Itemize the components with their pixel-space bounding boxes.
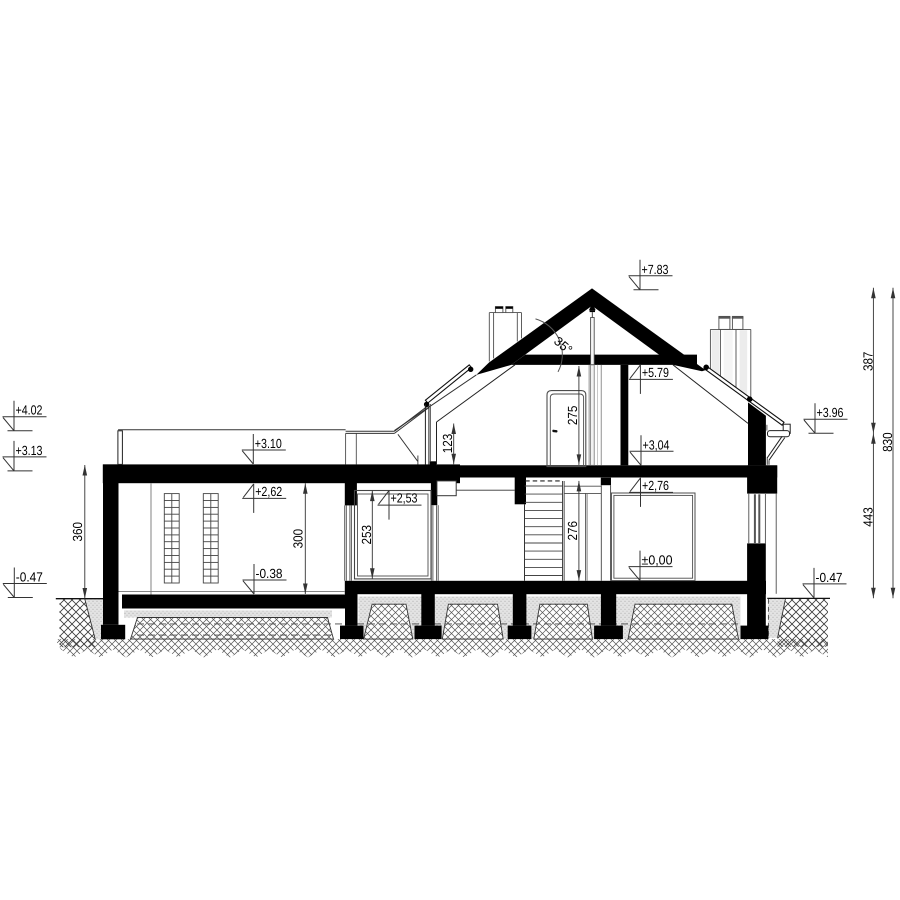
svg-text:300: 300 — [290, 529, 305, 549]
svg-text:360: 360 — [70, 522, 85, 542]
svg-text:+5.79: +5.79 — [642, 365, 669, 380]
svg-text:+7.83: +7.83 — [642, 262, 669, 277]
svg-text:-0.47: -0.47 — [16, 570, 43, 585]
svg-text:123: 123 — [440, 434, 455, 454]
svg-text:+4.02: +4.02 — [16, 403, 43, 418]
svg-text:+2,76: +2,76 — [642, 478, 669, 493]
svg-text:-0.47: -0.47 — [816, 570, 843, 585]
svg-text:±0,00: ±0,00 — [642, 553, 673, 568]
svg-text:253: 253 — [359, 525, 374, 545]
svg-text:830: 830 — [880, 432, 895, 452]
svg-text:+3.96: +3.96 — [817, 405, 844, 420]
svg-text:+2,62: +2,62 — [255, 484, 282, 499]
svg-text:443: 443 — [861, 507, 876, 527]
svg-text:276: 276 — [565, 521, 580, 541]
svg-text:387: 387 — [861, 352, 876, 372]
svg-text:+3.10: +3.10 — [255, 436, 282, 451]
svg-text:275: 275 — [565, 406, 580, 426]
svg-text:+3,04: +3,04 — [643, 437, 670, 452]
svg-text:+3.13: +3.13 — [16, 443, 43, 458]
svg-text:+2,53: +2,53 — [391, 491, 418, 506]
svg-text:-0.38: -0.38 — [256, 566, 283, 581]
